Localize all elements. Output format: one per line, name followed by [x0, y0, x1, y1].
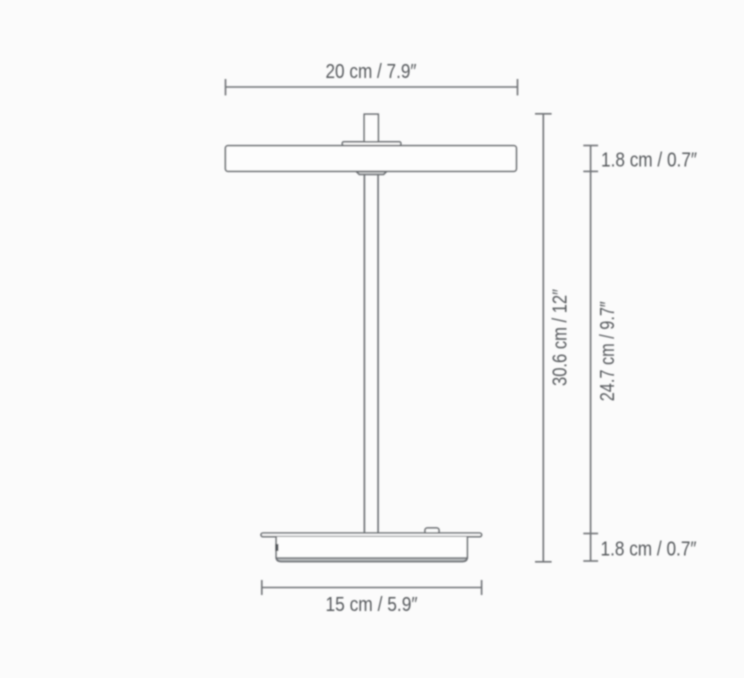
svg-text:1.8 cm / 0.7″: 1.8 cm / 0.7″ — [601, 538, 697, 560]
svg-text:20 cm / 7.9″: 20 cm / 7.9″ — [326, 60, 417, 83]
svg-text:15 cm / 5.9″: 15 cm / 5.9″ — [326, 593, 418, 616]
svg-text:24.7 cm / 9.7″: 24.7 cm / 9.7″ — [597, 301, 619, 401]
svg-text:30.6 cm / 12″: 30.6 cm / 12″ — [550, 289, 572, 386]
svg-text:1.8 cm / 0.7″: 1.8 cm / 0.7″ — [601, 150, 697, 172]
